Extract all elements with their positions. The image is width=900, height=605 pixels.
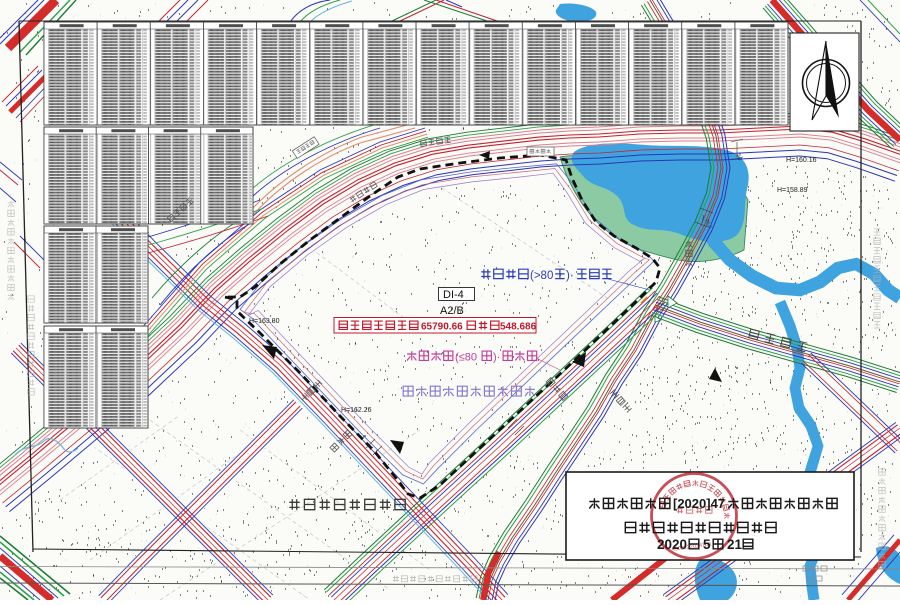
svg-text:A2/B: A2/B xyxy=(440,305,464,317)
svg-text:DI-4: DI-4 xyxy=(443,289,464,301)
svg-text:H=162.26: H=162.26 xyxy=(341,407,372,414)
svg-text:H=163.80: H=163.80 xyxy=(249,318,280,325)
svg-text:548.686: 548.686 xyxy=(500,322,537,333)
svg-text:[2020]47: [2020]47 xyxy=(673,496,725,511)
svg-text:5: 5 xyxy=(703,537,711,552)
svg-text:)·: )· xyxy=(493,352,500,364)
svg-text:65790.66: 65790.66 xyxy=(421,322,463,333)
svg-text:H=160.16: H=160.16 xyxy=(786,157,817,164)
svg-text:(>80: (>80 xyxy=(530,270,553,282)
svg-text:(≤80: (≤80 xyxy=(455,352,477,364)
svg-text:H=158.89: H=158.89 xyxy=(777,187,808,194)
svg-text:)·: )· xyxy=(566,270,574,282)
svg-text:2020: 2020 xyxy=(657,537,687,552)
svg-text:21: 21 xyxy=(727,537,743,552)
